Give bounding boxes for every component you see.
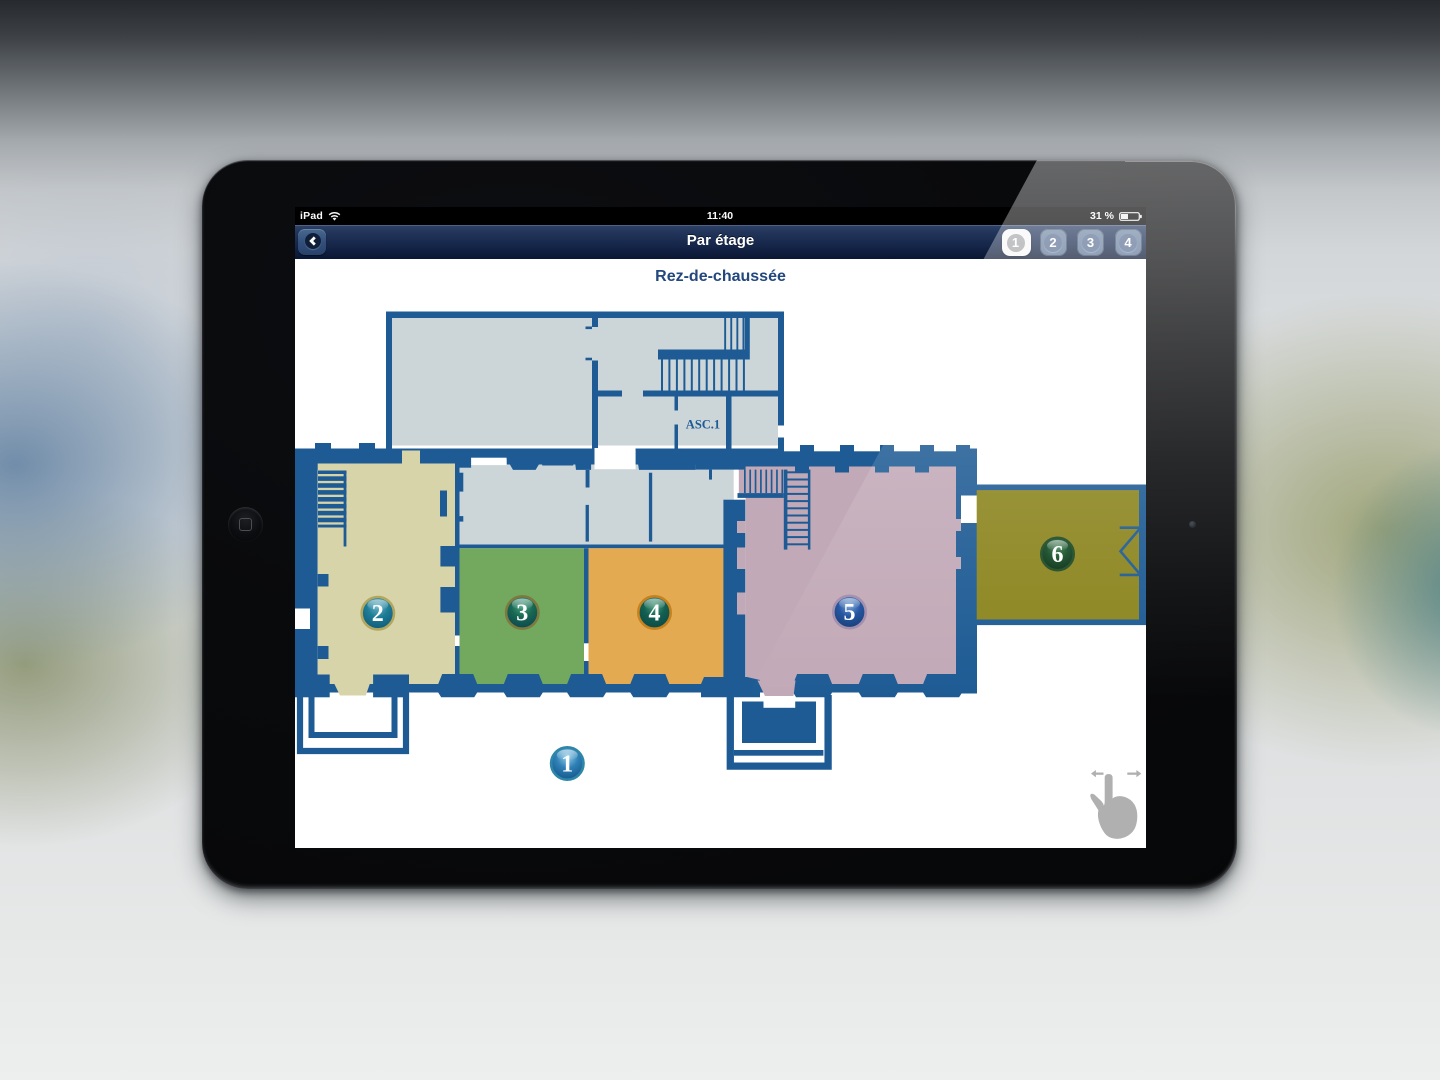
- svg-text:2: 2: [372, 601, 384, 627]
- svg-text:4: 4: [649, 600, 661, 626]
- svg-text:3: 3: [516, 600, 528, 626]
- svg-text:ASC.1: ASC.1: [686, 417, 720, 431]
- svg-text:1: 1: [561, 751, 573, 777]
